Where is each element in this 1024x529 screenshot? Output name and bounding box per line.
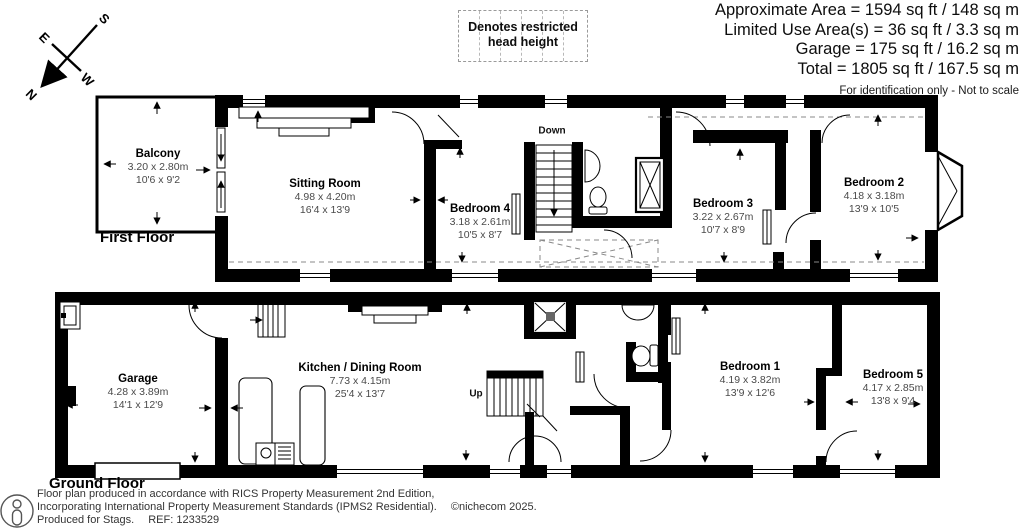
room-dim-metric: 3.22 x 2.67m: [693, 211, 754, 224]
shower-icon-first: [636, 158, 664, 212]
shower-icon-ground: [533, 301, 567, 333]
garage-area: Garage = 175 sq ft / 16.2 sq m: [715, 40, 1019, 60]
stairs-down-label: Down: [538, 126, 565, 137]
room-dim-metric: 4.28 x 3.89m: [108, 386, 169, 399]
approximate-area: Approximate Area = 1594 sq ft / 148 sq m: [715, 1, 1019, 21]
room-name: Kitchen / Dining Room: [298, 362, 421, 375]
room-name: Bedroom 4: [450, 203, 511, 216]
room-name: Balcony: [128, 148, 189, 161]
legend-line2: head height: [459, 35, 587, 50]
footer-line1: Floor plan produced in accordance with R…: [37, 488, 434, 500]
limited-use-area: Limited Use Area(s) = 36 sq ft / 3.3 sq …: [715, 21, 1019, 41]
ground-floor-dim-arrows: [66, 302, 920, 462]
stairs-down: [536, 145, 572, 232]
room-dim-imperial: 13'9 x 12'6: [720, 387, 781, 400]
toilet-icon-first: [589, 187, 607, 214]
footer-produced-for: Produced for Stags.: [37, 514, 134, 526]
room-dim-metric: 4.17 x 2.85m: [863, 382, 924, 395]
compass-north: N: [23, 86, 40, 103]
room-dim-metric: 3.20 x 2.80m: [128, 161, 189, 174]
room-dim-imperial: 13'9 x 10'5: [844, 203, 905, 216]
room-dim-imperial: 25'4 x 13'7: [298, 388, 421, 401]
room-label-kitchen-dining: Kitchen / Dining Room 7.73 x 4.15m 25'4 …: [298, 362, 421, 400]
entry-steps: [250, 303, 285, 337]
kitchen-sink-unit: [256, 443, 294, 465]
stairs-up: [487, 371, 543, 416]
room-dim-imperial: 10'7 x 8'9: [693, 224, 754, 237]
room-name: Sitting Room: [289, 178, 361, 191]
room-name: Bedroom 1: [720, 361, 781, 374]
compass-east: E: [36, 29, 53, 46]
room-label-bedroom3: Bedroom 3 3.22 x 2.67m 10'7 x 8'9: [693, 198, 754, 236]
footer-copyright: ©nichecom 2025.: [451, 501, 537, 513]
room-dim-imperial: 10'6 x 9'2: [128, 174, 189, 187]
area-summary: Approximate Area = 1594 sq ft / 148 sq m…: [715, 1, 1019, 102]
room-label-bedroom5: Bedroom 5 4.17 x 2.85m 13'8 x 9'4: [863, 369, 924, 407]
ground-floor-plan: [55, 292, 940, 479]
room-name: Bedroom 2: [844, 177, 905, 190]
room-label-sitting-room: Sitting Room 4.98 x 4.20m 16'4 x 13'9: [289, 178, 361, 216]
identification-note: For identification only - Not to scale: [715, 82, 1019, 102]
room-label-bedroom2: Bedroom 2 4.18 x 3.18m 13'9 x 10'5: [844, 177, 905, 215]
room-dim-imperial: 13'8 x 9'4: [863, 395, 924, 408]
restricted-height-legend: Denotes restricted head height: [458, 10, 588, 62]
room-dim-imperial: 10'5 x 8'7: [450, 229, 511, 242]
first-floor-plan: [97, 95, 962, 282]
footer-line3: Produced for Stags.REF: 1233529: [37, 514, 219, 526]
room-dim-metric: 4.98 x 4.20m: [289, 191, 361, 204]
room-dim-metric: 4.19 x 3.82m: [720, 374, 781, 387]
room-name: Garage: [108, 373, 169, 386]
bathroom-sink-icon-ground: [622, 305, 654, 320]
toilet-icon-ground: [632, 345, 658, 366]
room-dim-metric: 7.73 x 4.15m: [298, 375, 421, 388]
room-label-bedroom4: Bedroom 4 3.18 x 2.61m 10'5 x 8'7: [450, 203, 511, 241]
compass-icon: S E W N: [23, 10, 113, 103]
total-area: Total = 1805 sq ft / 167.5 sq m: [715, 60, 1019, 80]
room-label-garage: Garage 4.28 x 3.89m 14'1 x 12'9: [108, 373, 169, 411]
ground-floor-walls: [55, 292, 940, 478]
compass-west: W: [78, 70, 98, 90]
room-label-bedroom1: Bedroom 1 4.19 x 3.82m 13'9 x 12'6: [720, 361, 781, 399]
room-dim-metric: 4.18 x 3.18m: [844, 190, 905, 203]
hearth-icon-ground: [362, 306, 428, 323]
bathroom-sink-icon: [585, 150, 600, 182]
boiler-icon: [60, 302, 80, 329]
footer-line2: Incorporating International Property Mea…: [37, 501, 537, 513]
floorplan-page: S E W N: [0, 0, 1024, 529]
footer-standards: Incorporating International Property Mea…: [37, 501, 437, 513]
room-label-balcony: Balcony 3.20 x 2.80m 10'6 x 9'2: [128, 148, 189, 186]
bay-window: [925, 152, 962, 230]
first-floor-label: First Floor: [100, 229, 174, 246]
room-name: Bedroom 3: [693, 198, 754, 211]
room-dim-imperial: 16'4 x 13'9: [289, 204, 361, 217]
legend-line1: Denotes restricted: [459, 20, 587, 35]
stairs-up-label: Up: [469, 389, 482, 400]
footer-ref: REF: 1233529: [148, 514, 219, 526]
person-icon: [1, 495, 33, 527]
compass-south: S: [96, 10, 113, 27]
room-name: Bedroom 5: [863, 369, 924, 382]
room-dim-metric: 3.18 x 2.61m: [450, 216, 511, 229]
room-dim-imperial: 14'1 x 12'9: [108, 399, 169, 412]
